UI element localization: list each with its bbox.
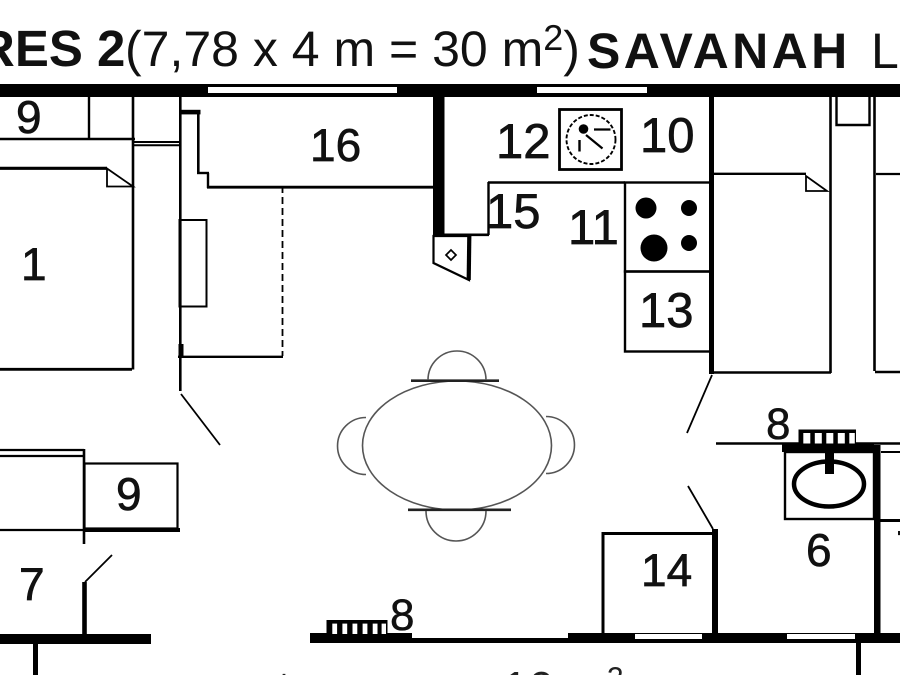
svg-text:terrasse = 10 m2: terrasse = 10 m2 [278, 662, 625, 675]
svg-text:8: 8 [390, 591, 414, 640]
svg-text:16: 16 [310, 119, 361, 171]
svg-text:8: 8 [766, 400, 790, 449]
svg-text:RES 2: RES 2 [0, 20, 125, 77]
svg-text:10: 10 [640, 109, 695, 163]
svg-text:6: 6 [806, 524, 832, 576]
svg-text:9: 9 [116, 468, 142, 520]
svg-text:7: 7 [19, 558, 45, 610]
svg-text:15: 15 [486, 185, 541, 239]
svg-text:1: 1 [21, 238, 47, 290]
svg-text:L: L [871, 23, 899, 79]
svg-text:(7,78 x 4 m = 30 m2): (7,78 x 4 m = 30 m2) [125, 17, 580, 77]
svg-text:13: 13 [639, 284, 694, 338]
svg-text:SAVANAH: SAVANAH [587, 23, 851, 79]
svg-text:12: 12 [496, 115, 551, 169]
svg-text:9: 9 [16, 91, 42, 143]
svg-text:11: 11 [568, 201, 619, 255]
svg-text:7: 7 [896, 521, 900, 573]
svg-text:14: 14 [641, 544, 692, 596]
